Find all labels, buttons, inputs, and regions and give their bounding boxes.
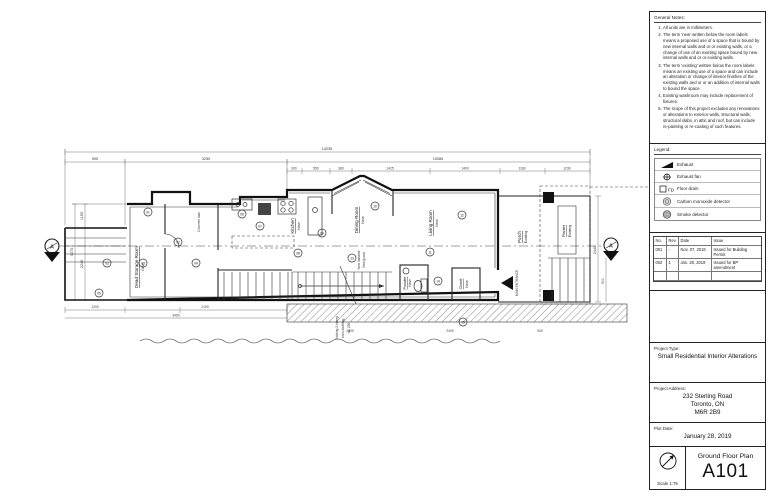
svg-text:2400: 2400 <box>446 329 454 333</box>
room-label-planter: Planter <box>562 224 566 237</box>
dim-overall-top: 14235 <box>322 147 333 151</box>
break-wavy-line <box>140 339 500 343</box>
svg-text:15: 15 <box>461 320 465 324</box>
svg-text:03: 03 <box>141 261 145 265</box>
svg-text:550: 550 <box>313 167 319 171</box>
legend-row: Exhaust <box>655 159 760 171</box>
svg-text:New: New <box>361 216 365 224</box>
porch-post <box>543 192 554 203</box>
scale-label: Scale 1:75 <box>657 481 678 486</box>
exhaust-icon <box>657 161 677 169</box>
rev-cell-empty <box>667 272 679 281</box>
note-item: The term 'existing' written below the ro… <box>663 63 761 92</box>
revision-section: No. Rev. Date Issue 001 - Nov. 07, 2018 … <box>650 233 765 291</box>
bay-window <box>332 182 392 196</box>
svg-text:2440: 2440 <box>593 246 597 254</box>
planter-box <box>558 206 576 254</box>
note-item: Existing washroom may include replacemen… <box>663 93 761 105</box>
rev-cell: - <box>667 246 679 259</box>
svg-text:08: 08 <box>296 251 300 255</box>
svg-text:A: A <box>609 243 613 249</box>
title-block: General Notes: All units are in millimet… <box>649 11 766 490</box>
svg-text:13: 13 <box>350 256 354 260</box>
porch-post <box>543 290 554 301</box>
section-marker-left: A <box>44 239 60 262</box>
project-address-line: M6R 2B9 <box>654 409 761 417</box>
svg-text:1150: 1150 <box>80 212 84 220</box>
svg-text:3450: 3450 <box>172 314 180 318</box>
rev-cell: 002 <box>654 259 667 272</box>
revision-table: No. Rev. Date Issue 001 - Nov. 07, 2018 … <box>653 236 762 282</box>
svg-text:380: 380 <box>338 167 344 171</box>
stair-note: New handrail <box>357 250 361 269</box>
section-marker-right: A <box>603 238 619 261</box>
room-label-porch: Porch <box>517 231 522 243</box>
room-label-kitchen: Kitchen <box>290 218 295 234</box>
project-address-line: 232 Sterling Road <box>654 393 761 401</box>
legend-row: Smoke detector <box>655 208 760 220</box>
scale-cell: Scale 1:75 <box>650 447 686 489</box>
svg-text:A: A <box>50 244 54 250</box>
general-notes-title: General Notes: <box>654 15 761 23</box>
drawing-title: Ground Floor Plan <box>698 453 754 460</box>
main-entrance-label: MAIN ENTRANCE <box>515 270 519 296</box>
svg-text:3250: 3250 <box>202 157 210 161</box>
svg-text:900: 900 <box>601 278 605 284</box>
svg-text:07: 07 <box>258 224 262 228</box>
rev-header: Rev. <box>667 237 679 246</box>
svg-text:New: New <box>408 279 412 287</box>
room-label-dead-storage: Dead Storage Room <box>134 246 139 288</box>
legend-row: Carbon monoxide detector <box>655 195 760 208</box>
stair-note: New guard <box>362 252 366 268</box>
svg-text:1180: 1180 <box>518 167 525 171</box>
porch-steps <box>548 258 590 302</box>
rev-cell: Nov. 07, 2018 <box>679 246 712 259</box>
legend-title: Legend: <box>654 147 761 155</box>
exhaust-fan-icon <box>657 173 677 181</box>
drawing-title-section: Scale 1:75 Ground Floor Plan A101 <box>650 447 765 489</box>
svg-text:2150: 2150 <box>201 305 209 309</box>
svg-text:1425: 1425 <box>386 167 394 171</box>
plot-date-section: Plot Date: January 28, 2019 <box>650 423 765 447</box>
svg-text:05: 05 <box>97 291 101 295</box>
svg-text:10: 10 <box>373 204 377 208</box>
rev-header: Issue <box>712 237 761 246</box>
svg-text:300: 300 <box>291 167 297 171</box>
floor-drain-icon: FD <box>657 185 677 193</box>
project-type-section: Project Type: Small Residential Interior… <box>650 343 765 383</box>
fridge <box>258 203 271 215</box>
floor-plan-drawing: 14235 900 3250 10085 300 550 380 1425 14… <box>0 0 650 497</box>
svg-text:03: 03 <box>105 261 109 265</box>
svg-text:Existing: Existing <box>568 225 572 238</box>
rev-header: Date <box>679 237 712 246</box>
svg-text:New: New <box>435 219 439 227</box>
legend-row: FD Floor drain <box>655 183 760 195</box>
svg-text:01: 01 <box>146 210 150 214</box>
north-arrow-icon <box>658 451 678 471</box>
stove <box>278 199 296 214</box>
project-address-label: Project Address: <box>654 386 761 391</box>
note-item: The term 'new' written below the room la… <box>663 32 761 61</box>
svg-text:FD: FD <box>668 187 675 192</box>
sheet-title-cell: Ground Floor Plan A101 <box>686 447 765 489</box>
rev-cell-empty <box>712 272 761 281</box>
svg-text:900: 900 <box>92 157 98 161</box>
note-item: The scope of this project excludes any r… <box>663 106 761 129</box>
exterior-walls <box>65 176 498 300</box>
rev-cell: Issued for BP amendment <box>712 259 761 272</box>
smoke-detector-icon <box>657 210 677 219</box>
project-type-label: Project Type: <box>654 346 761 351</box>
svg-text:1200: 1200 <box>91 305 99 309</box>
concrete-slab-note: Concrete slab <box>197 212 201 232</box>
general-notes-section: General Notes: All units are in millimet… <box>650 12 765 144</box>
svg-text:04: 04 <box>194 261 198 265</box>
svg-text:New: New <box>465 280 469 288</box>
general-notes-list: All units are in millimeters. The term '… <box>654 25 761 130</box>
svg-text:1400: 1400 <box>461 167 469 171</box>
rev-cell-empty <box>679 272 712 281</box>
svg-text:02: 02 <box>176 240 180 244</box>
svg-text:12: 12 <box>460 213 464 217</box>
rev-cell: 1 <box>667 259 679 272</box>
svg-text:09: 09 <box>320 231 324 235</box>
main-entrance-arrow <box>501 276 513 290</box>
svg-text:11: 11 <box>428 250 432 254</box>
svg-text:14: 14 <box>436 279 440 283</box>
co-detector-icon <box>657 197 677 206</box>
svg-text:1230: 1230 <box>563 167 571 171</box>
rev-header: No. <box>654 237 667 246</box>
room-label-powder: Powder <box>403 276 407 290</box>
sheet-number: A101 <box>702 461 748 483</box>
svg-text:940: 940 <box>537 329 543 333</box>
svg-text:4270: 4270 <box>70 248 74 256</box>
svg-text:10085: 10085 <box>433 157 444 161</box>
project-type-value: Small Residential Interior Alterations <box>654 353 761 361</box>
plot-date-label: Plot Date: <box>654 426 761 431</box>
project-address-section: Project Address: 232 Sterling Road Toron… <box>650 383 765 423</box>
legend-table: Exhaust Exhaust fan FD Floor drain Carbo… <box>654 158 761 221</box>
neighbour-note: Existing 2-storey <box>335 316 339 340</box>
svg-text:brick dwelling,: brick dwelling, <box>341 318 345 338</box>
rev-cell: Jan. 28, 2019 <box>679 259 712 272</box>
legend-row: Exhaust fan <box>655 171 760 183</box>
title-block-spacer <box>650 291 765 343</box>
room-label-closet: Closet <box>459 278 463 290</box>
note-item: All units are in millimeters. <box>663 25 761 31</box>
legend-section: Legend: Exhaust Exhaust fan FD Floor dra… <box>650 144 765 233</box>
porch <box>498 186 590 304</box>
svg-text:New: New <box>297 222 301 230</box>
kitchen-fixtures <box>232 197 322 248</box>
rev-cell-empty <box>654 272 667 281</box>
svg-text:06: 06 <box>240 212 244 216</box>
svg-text:Existing: Existing <box>524 231 528 244</box>
plot-date-value: January 28, 2019 <box>654 433 761 441</box>
svg-text:2240: 2240 <box>80 260 84 268</box>
room-label-dining: Dining Room <box>354 207 359 234</box>
interior-walls <box>165 190 480 300</box>
room-label-living: Living Room <box>428 210 433 236</box>
svg-text:no. 230: no. 230 <box>347 322 351 333</box>
project-address-line: Toronto, ON <box>654 401 761 409</box>
rev-cell: 001 <box>654 246 667 259</box>
rev-cell: Issued for Building Permit <box>712 246 761 259</box>
